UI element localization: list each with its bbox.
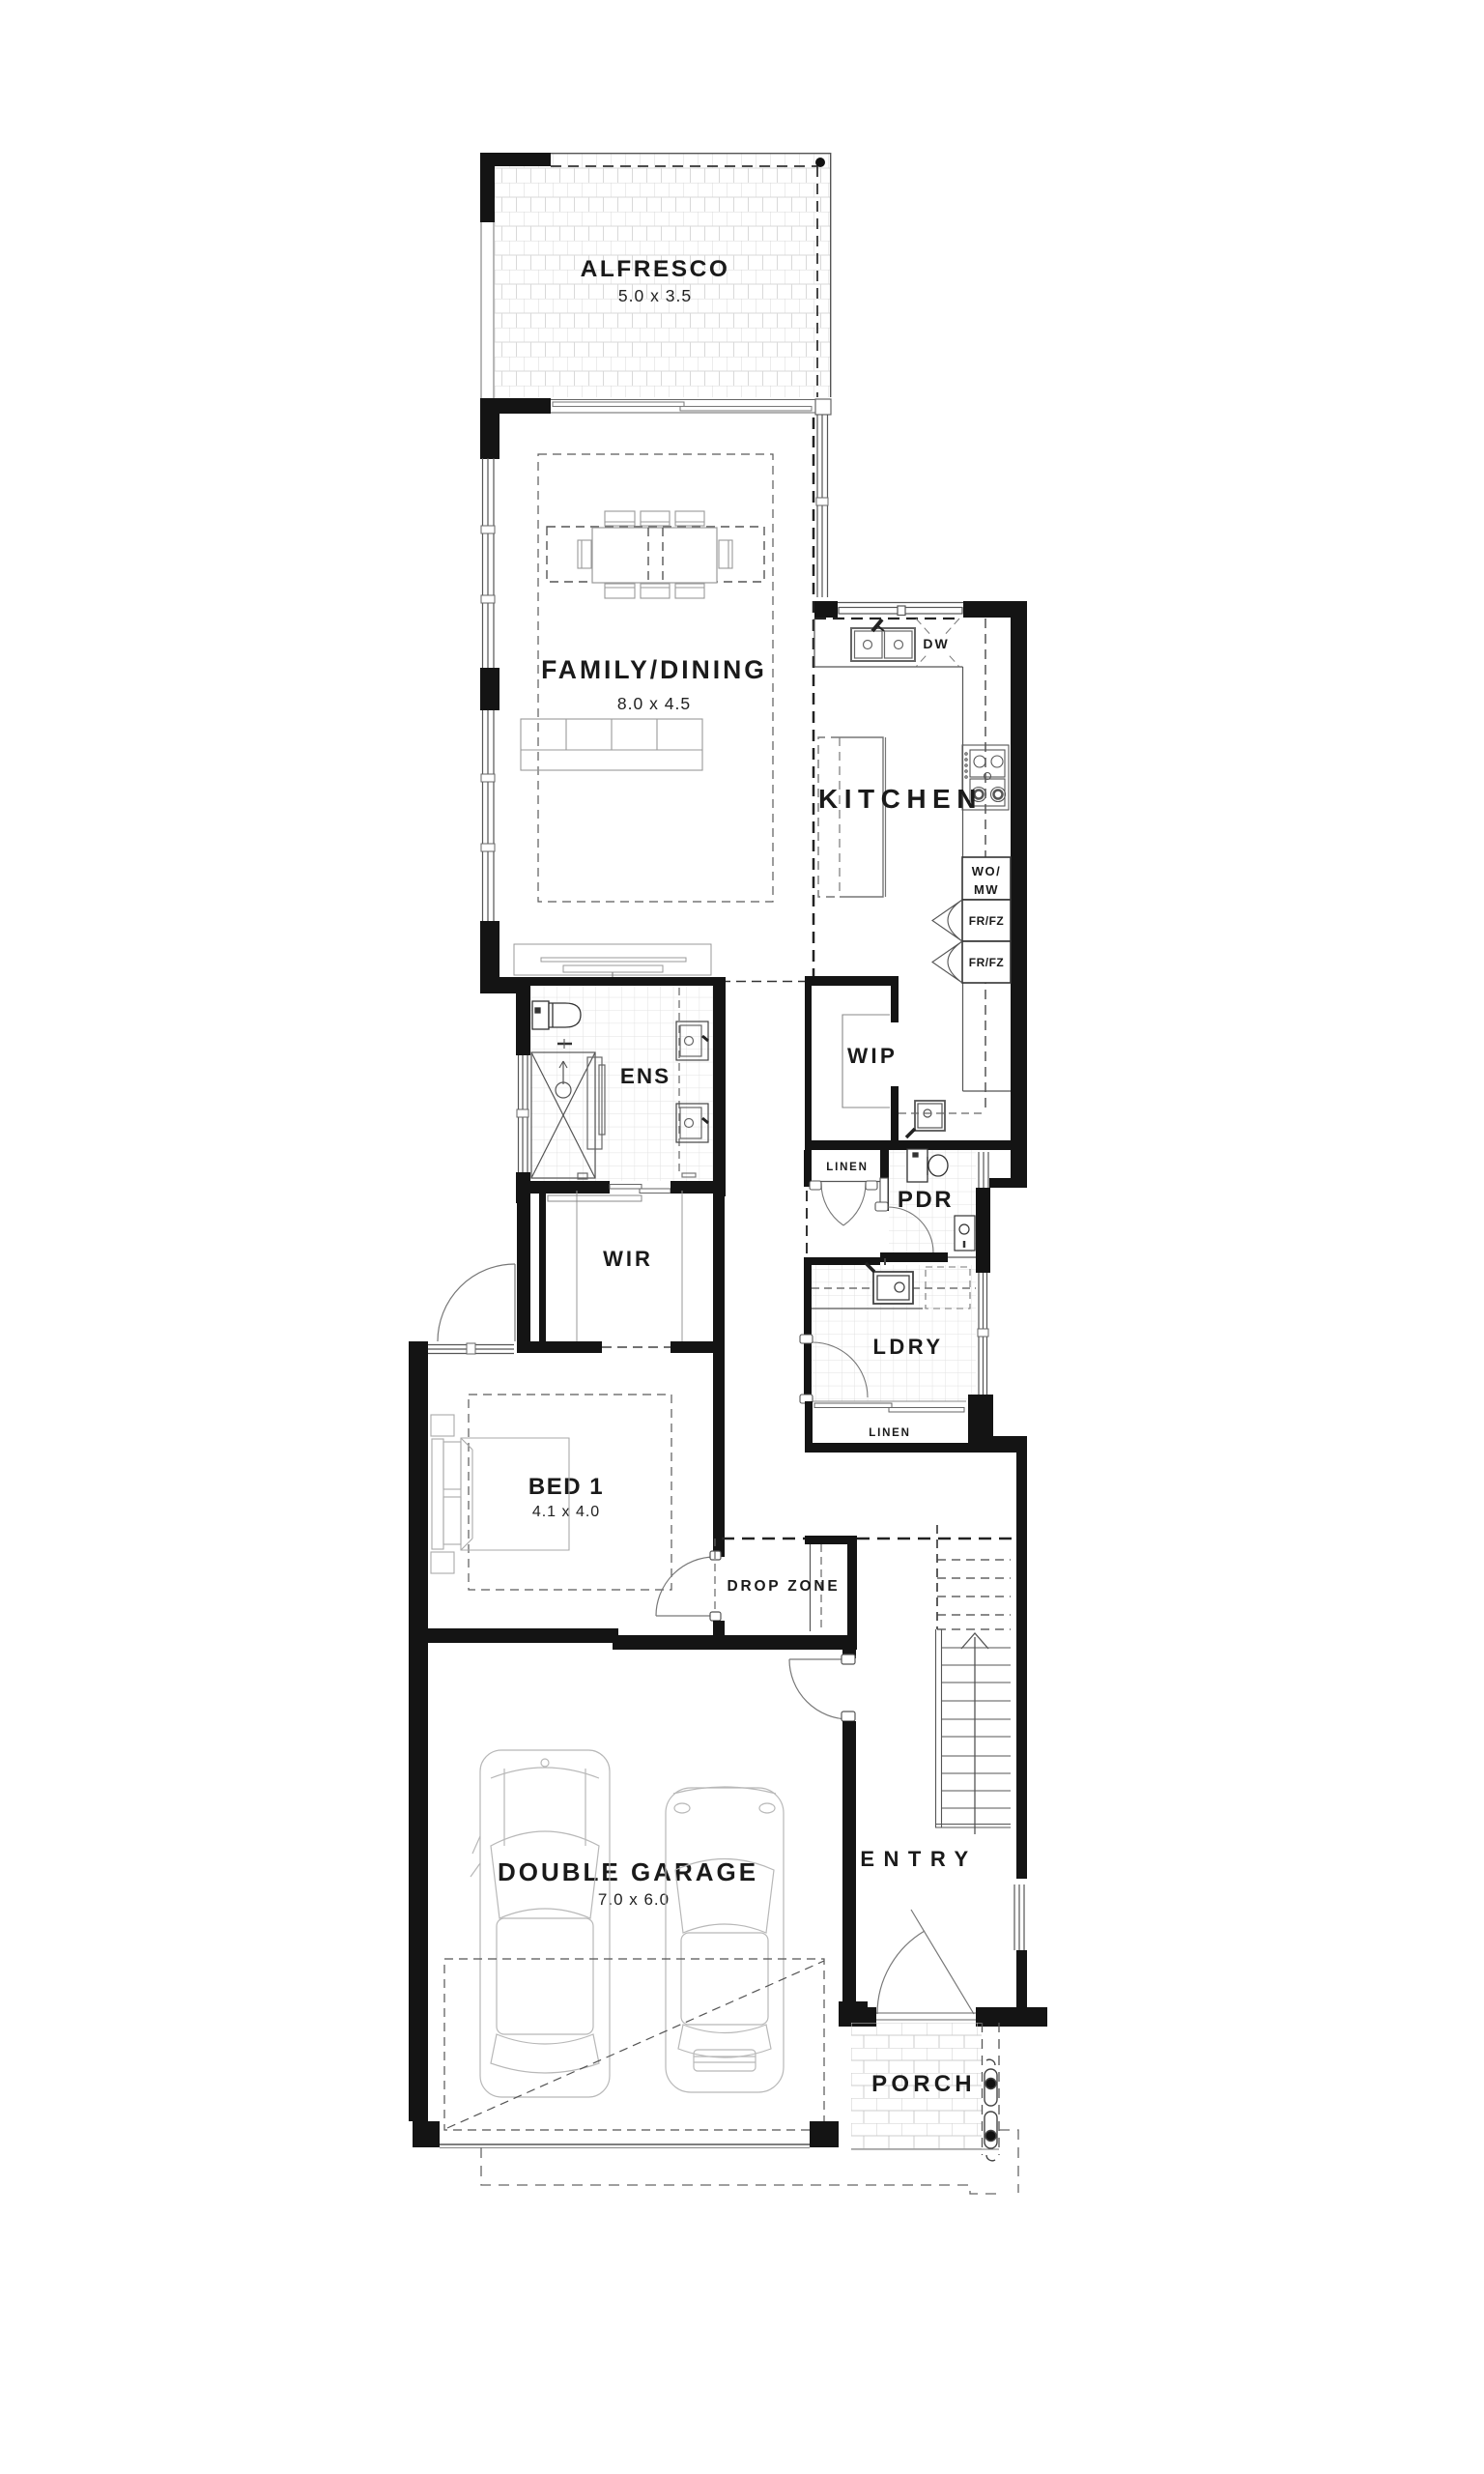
svg-text:DROP ZONE: DROP ZONE	[727, 1578, 840, 1595]
svg-text:KITCHEN: KITCHEN	[818, 784, 983, 814]
svg-text:WIP: WIP	[847, 1044, 898, 1068]
svg-text:WIR: WIR	[603, 1247, 653, 1271]
svg-text:ENTRY: ENTRY	[860, 1847, 977, 1871]
svg-text:WO/: WO/	[972, 864, 1002, 878]
svg-text:ALFRESCO: ALFRESCO	[581, 256, 730, 282]
svg-text:MW: MW	[974, 882, 999, 897]
svg-text:PDR: PDR	[898, 1187, 954, 1213]
svg-text:FAMILY/DINING: FAMILY/DINING	[541, 655, 767, 684]
svg-text:DOUBLE GARAGE: DOUBLE GARAGE	[498, 1857, 758, 1886]
svg-text:ENS: ENS	[620, 1064, 671, 1088]
svg-text:FR/FZ: FR/FZ	[969, 914, 1005, 928]
svg-text:PORCH: PORCH	[871, 2071, 976, 2097]
svg-text:DW: DW	[923, 636, 949, 651]
svg-text:LINEN: LINEN	[869, 1427, 911, 1439]
svg-text:8.0 x 4.5: 8.0 x 4.5	[617, 694, 691, 713]
svg-text:LINEN: LINEN	[826, 1162, 869, 1173]
svg-text:BED 1: BED 1	[528, 1474, 604, 1500]
svg-text:4.1 x 4.0: 4.1 x 4.0	[532, 1504, 600, 1520]
svg-text:LDRY: LDRY	[872, 1335, 943, 1359]
svg-text:7.0 x 6.0: 7.0 x 6.0	[598, 1890, 670, 1909]
svg-text:5.0 x 3.5: 5.0 x 3.5	[618, 286, 692, 305]
svg-text:FR/FZ: FR/FZ	[969, 956, 1005, 969]
